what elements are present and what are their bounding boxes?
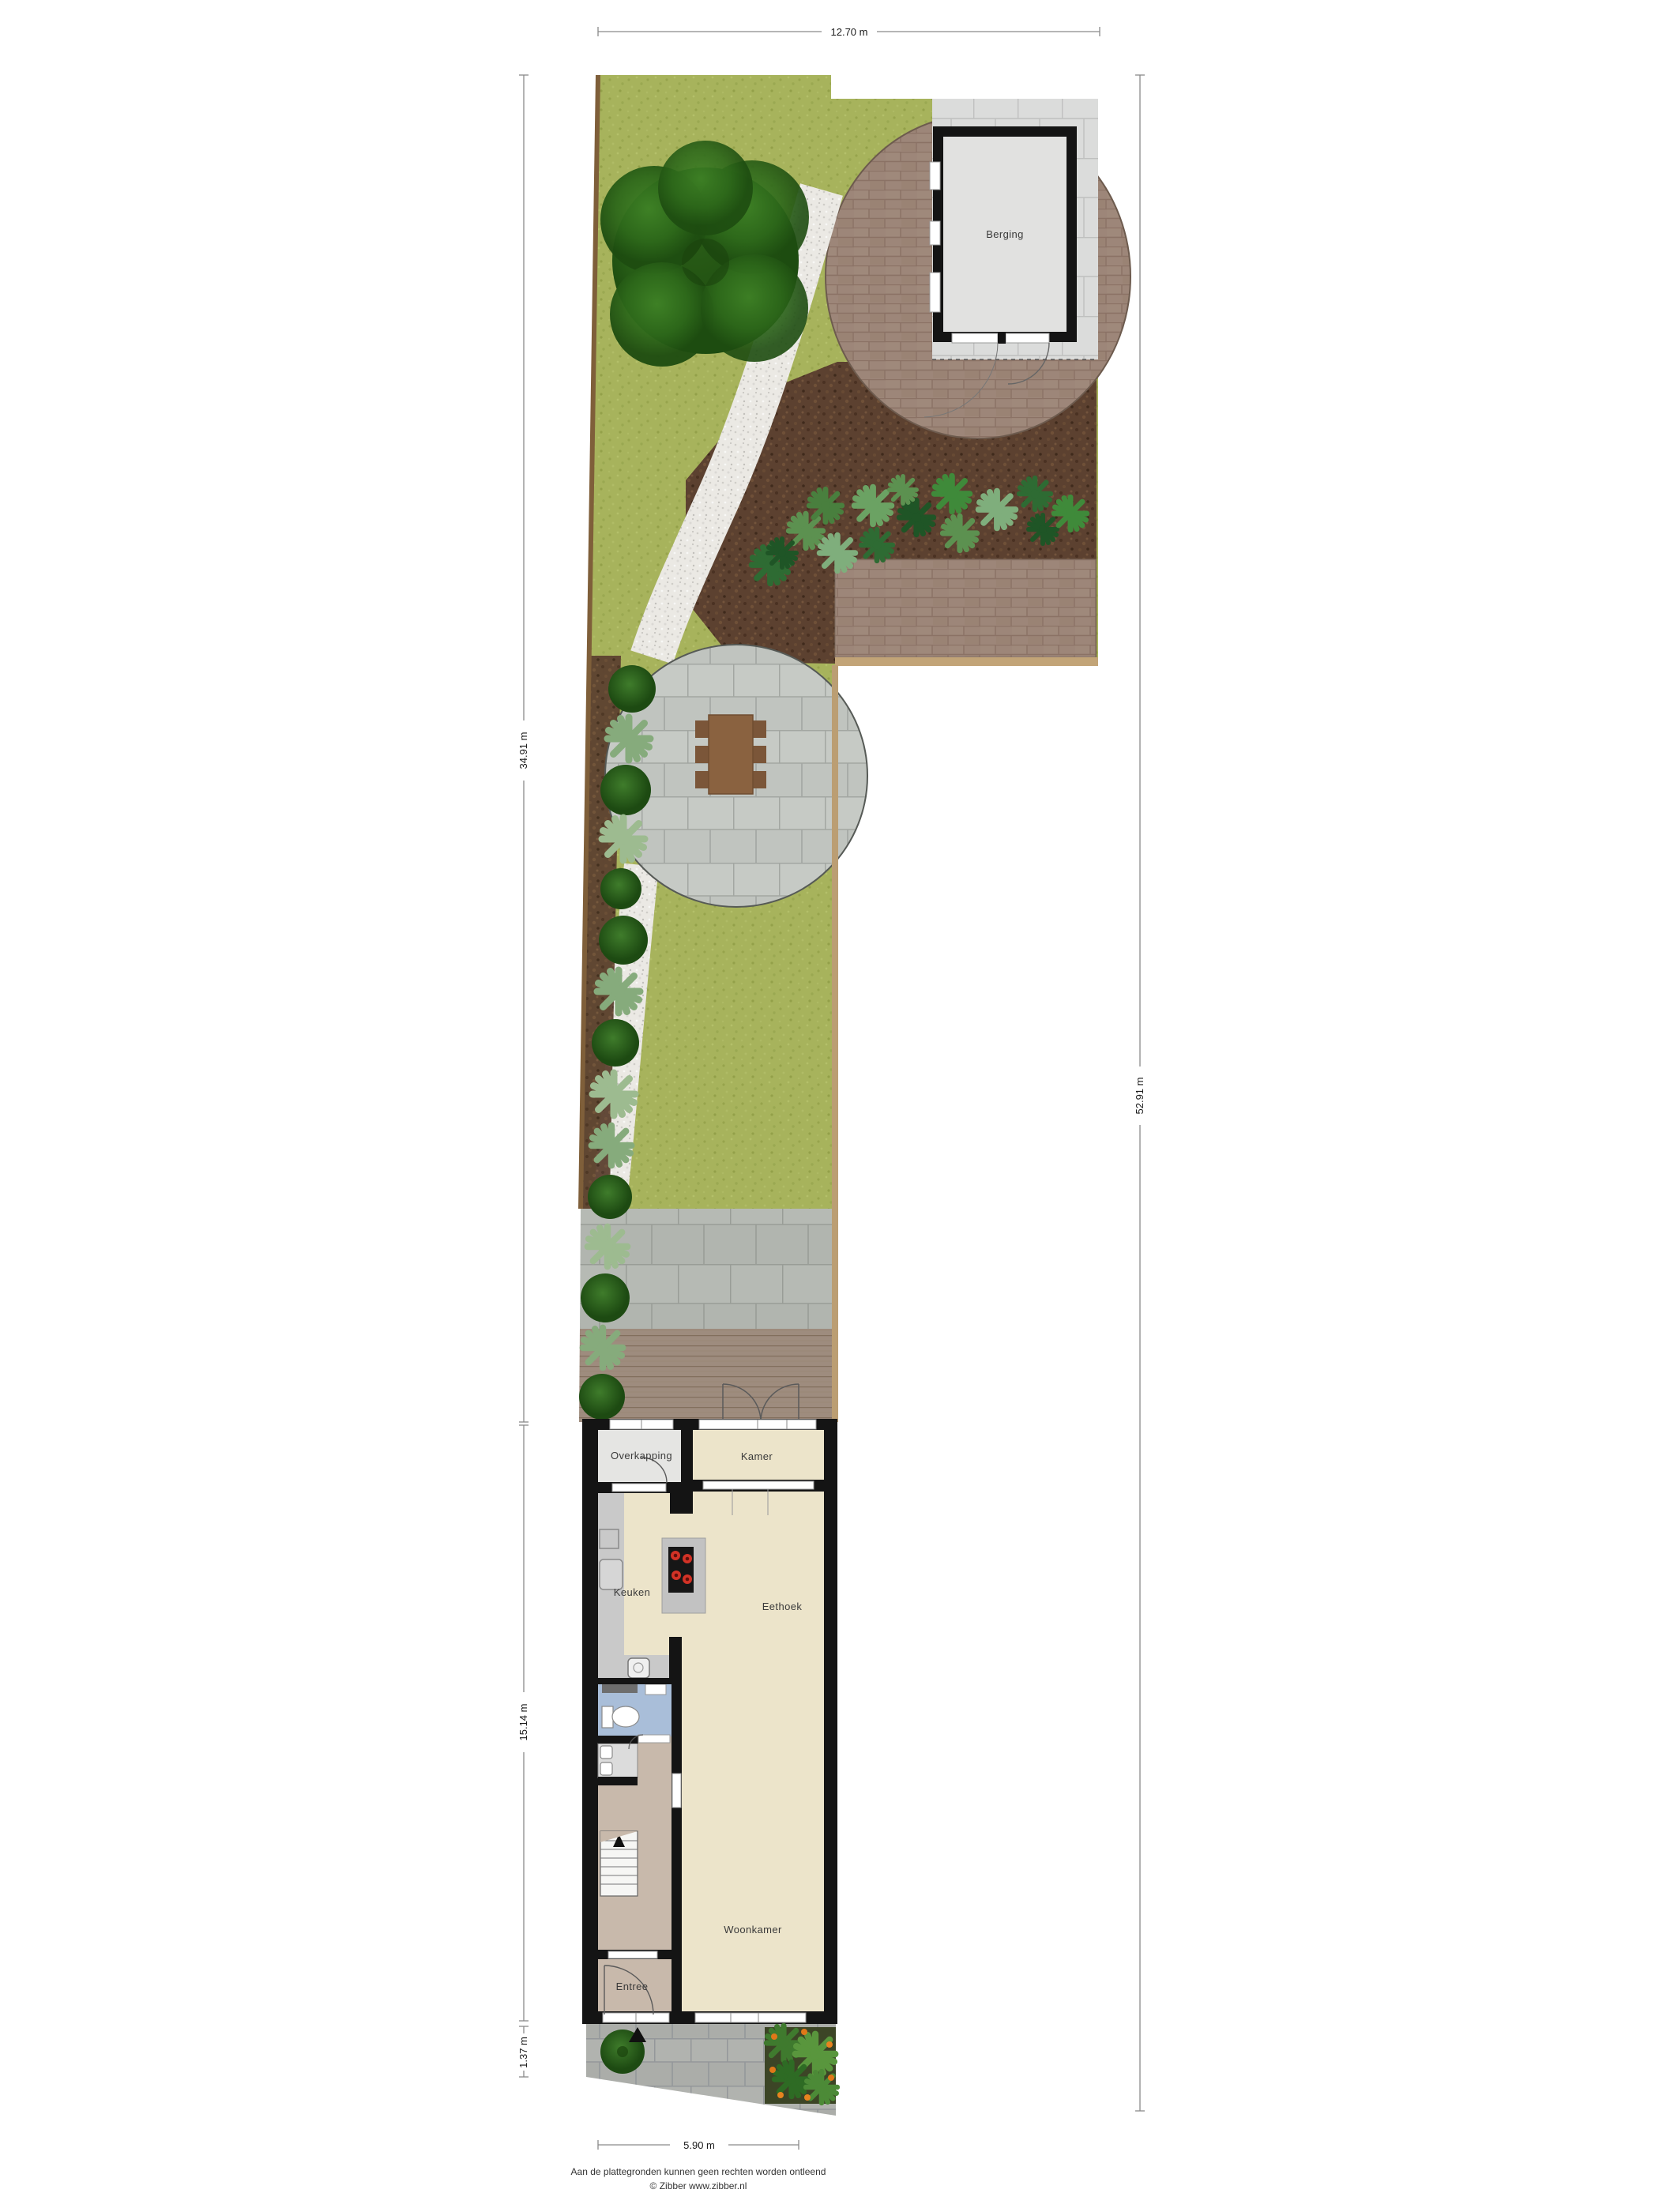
footer: Aan de plattegronden kunnen geen rechten…	[571, 2166, 826, 2191]
woonkamer-label: Woonkamer	[724, 1924, 782, 1935]
entree-label: Entree	[616, 1981, 649, 1992]
berging-label: Berging	[986, 228, 1024, 240]
washing-machine	[628, 1658, 649, 1678]
dim-top: 12.70 m	[831, 26, 868, 38]
dim-front-left: 1.37 m	[517, 2037, 529, 2068]
berging-windows	[930, 162, 940, 312]
front-yard	[586, 2024, 837, 2116]
toilet-room	[598, 1684, 671, 1736]
toilet-bowl	[612, 1706, 639, 1727]
footer-copyright: © Zibber www.zibber.nl	[650, 2180, 747, 2191]
toilet-tank	[602, 1706, 613, 1728]
meter-closet	[598, 1744, 638, 1777]
brick-path	[835, 559, 1096, 657]
dim-house-left: 15.14 m	[517, 1704, 529, 1741]
kitchen-island	[662, 1538, 705, 1613]
kamer-label: Kamer	[741, 1450, 773, 1462]
right-edging	[832, 665, 838, 1422]
dim-right: 52.91 m	[1134, 1078, 1145, 1115]
stairs	[600, 1831, 638, 1896]
footer-disclaimer: Aan de plattegronden kunnen geen rechten…	[571, 2166, 826, 2177]
flower-bed	[765, 2026, 837, 2104]
eethoek-label: Eethoek	[762, 1601, 803, 1612]
dim-garden-left: 34.91 m	[517, 732, 529, 769]
tree	[600, 141, 809, 367]
keuken-label: Keuken	[614, 1586, 651, 1598]
overkapping-label: Overkapping	[611, 1450, 672, 1461]
floorplan-page: Berging	[0, 0, 1659, 2212]
brick-path-edge	[835, 657, 1098, 666]
dining-table	[695, 715, 766, 794]
house: Overkapping Kamer Keuken Eethoek Woonkam…	[582, 1419, 837, 2024]
dim-bottom: 5.90 m	[683, 2139, 715, 2151]
garden-floorplan: Berging	[0, 0, 1659, 2212]
sink	[600, 1559, 623, 1589]
